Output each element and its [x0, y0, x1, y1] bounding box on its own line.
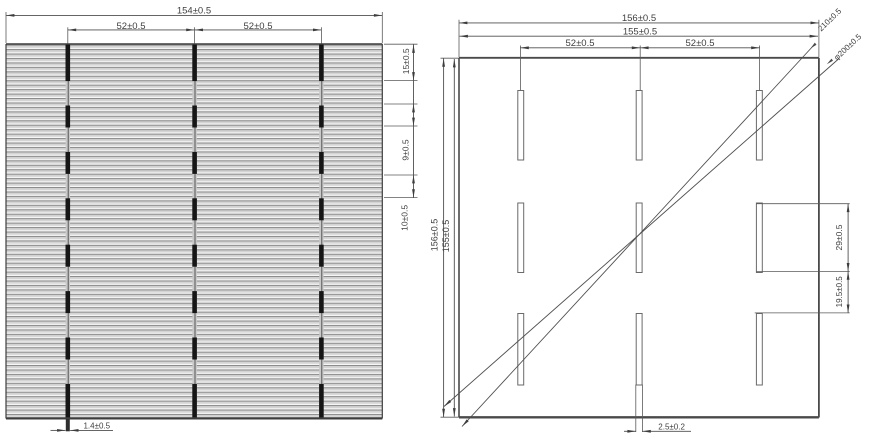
svg-text:1.4±0.5: 1.4±0.5 [83, 422, 110, 431]
svg-text:156±0.5: 156±0.5 [622, 13, 656, 24]
svg-text:15±0.5: 15±0.5 [401, 48, 411, 74]
svg-text:52±0.5: 52±0.5 [117, 21, 146, 32]
svg-text:2.5±0.2: 2.5±0.2 [658, 423, 685, 432]
svg-text:154±0.5: 154±0.5 [177, 6, 211, 17]
svg-text:52±0.5: 52±0.5 [244, 21, 273, 32]
svg-text:52±0.5: 52±0.5 [566, 38, 595, 49]
svg-text:29±0.5: 29±0.5 [834, 224, 844, 250]
svg-text:210±0.5: 210±0.5 [816, 6, 843, 33]
svg-text:φ200±0.5: φ200±0.5 [832, 32, 863, 62]
svg-text:10±0.5: 10±0.5 [400, 205, 410, 231]
svg-text:155±0.5: 155±0.5 [623, 26, 657, 37]
svg-text:19.5±0.5: 19.5±0.5 [835, 276, 844, 308]
svg-text:156±0.5: 156±0.5 [430, 219, 440, 251]
svg-text:155±0.5: 155±0.5 [441, 220, 451, 252]
svg-text:9±0.5: 9±0.5 [401, 139, 411, 160]
svg-text:52±0.5: 52±0.5 [686, 38, 715, 49]
